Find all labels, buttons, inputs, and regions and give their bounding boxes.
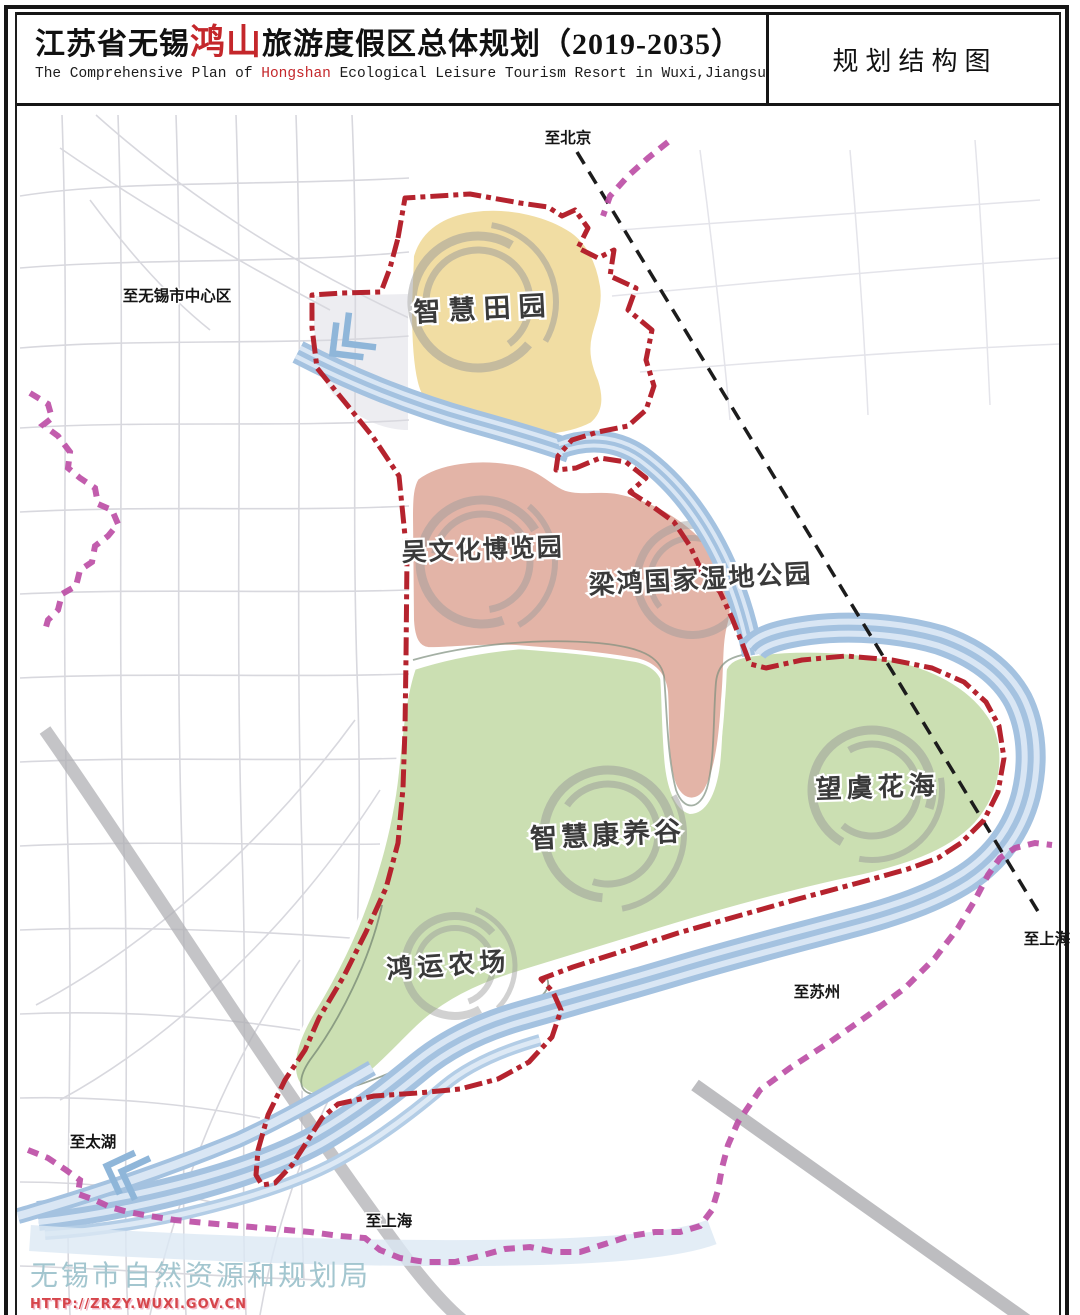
plan-title: 江苏省无锡鸿山旅游度假区总体规划（2019-2035） <box>35 23 766 65</box>
metro-line-north <box>603 142 668 216</box>
direction-label-shanghai-road: 至上海 <box>366 1211 413 1230</box>
zone-label-wangyu-flower-sea: 望虞花海 <box>815 771 940 805</box>
title-block: 江苏省无锡鸿山旅游度假区总体规划（2019-2035） The Comprehe… <box>15 12 1061 106</box>
direction-label-taihu: 至太湖 <box>70 1132 117 1151</box>
plan-title-highlight: 鸿山 <box>190 23 262 62</box>
direction-label-beijing: 至北京 <box>545 128 592 147</box>
sheet-frame-top <box>4 5 1069 9</box>
sheet-border-left <box>15 12 17 1315</box>
highway-band-south <box>695 1085 1050 1315</box>
footer: 无锡市自然资源和规划局 HTTP://ZRZY.WUXI.GOV.CN <box>30 1254 371 1312</box>
direction-label-wuxi-center: 至无锡市中心区 <box>123 286 232 305</box>
sheet-border-right <box>1059 12 1061 1315</box>
agency-url: HTTP://ZRZY.WUXI.GOV.CN <box>30 1297 371 1312</box>
sheet-frame-left <box>4 5 8 1315</box>
title-area: 江苏省无锡鸿山旅游度假区总体规划（2019-2035） The Comprehe… <box>15 15 766 103</box>
map-type-label: 规划结构图 <box>832 41 997 78</box>
direction-label-suzhou: 至苏州 <box>794 982 841 1001</box>
direction-label-shanghai-rail: 至上海 <box>1024 929 1071 948</box>
plan-subtitle-pre: The Comprehensive Plan of <box>35 66 261 82</box>
sheet-frame-right <box>1065 5 1069 1315</box>
zone-label-wu-culture-expo: 吴文化博览园 <box>401 532 564 567</box>
river-bottom-band <box>30 1232 712 1253</box>
map-type-box: 规划结构图 <box>766 15 1061 103</box>
planning-map: 智慧田园 吴文化博览园 梁鸿国家湿地公园 智慧康养谷 望虞花海 鸿运农场 至北京… <box>0 0 1080 1315</box>
road-network-east <box>612 140 1060 420</box>
plan-title-pre: 江苏省无锡 <box>35 28 190 61</box>
metro-line-west <box>30 393 118 634</box>
agency-name: 无锡市自然资源和规划局 <box>30 1254 371 1294</box>
plan-title-post: 旅游度假区总体规划（2019-2035） <box>262 28 742 61</box>
plan-subtitle-highlight: Hongshan <box>261 66 331 82</box>
plan-subtitle: The Comprehensive Plan of Hongshan Ecolo… <box>35 66 766 82</box>
plan-subtitle-post: Ecological Leisure Tourism Resort in Wux… <box>331 66 766 82</box>
